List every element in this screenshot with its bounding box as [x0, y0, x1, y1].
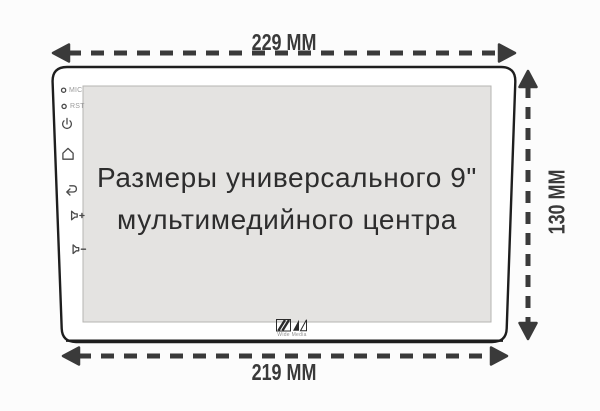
dimension-bottom-label: 219 MM	[252, 361, 317, 384]
dimension-height-label: 130 MM	[546, 170, 569, 235]
rst-label: RST	[70, 103, 85, 110]
screen-title-line2: мультимедийного центра	[117, 199, 457, 241]
mic-label: MIC	[69, 87, 82, 94]
logo-caption: Wide Media	[277, 333, 306, 338]
screen-title-line1: Размеры универсального 9"	[97, 157, 477, 199]
dimension-top-label: 229 MM	[252, 31, 317, 54]
screen-title: Размеры универсального 9" мультимедийног…	[83, 86, 491, 322]
height-dimension-arrow	[520, 71, 537, 339]
diagram-canvas: 229 MM 219 MM 130 MM Размеры универсальн…	[0, 0, 600, 411]
